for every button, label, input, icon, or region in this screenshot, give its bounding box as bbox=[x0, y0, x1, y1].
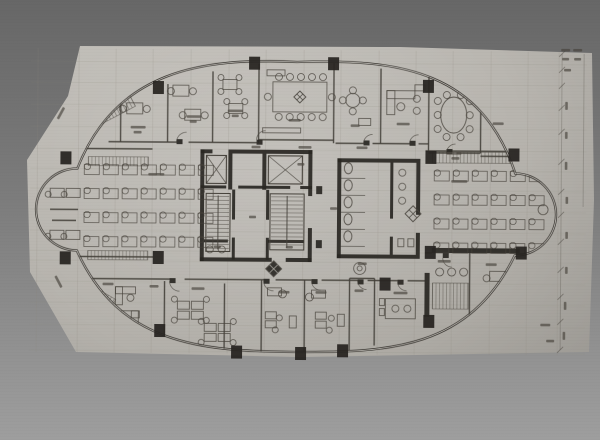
grid-lines bbox=[29, 48, 587, 356]
furniture-symbols bbox=[44, 68, 549, 348]
open-office-desks bbox=[84, 163, 545, 253]
floorplan-drawing bbox=[0, 0, 600, 440]
building-outline bbox=[35, 60, 557, 354]
photo-of-floorplan bbox=[0, 0, 600, 440]
